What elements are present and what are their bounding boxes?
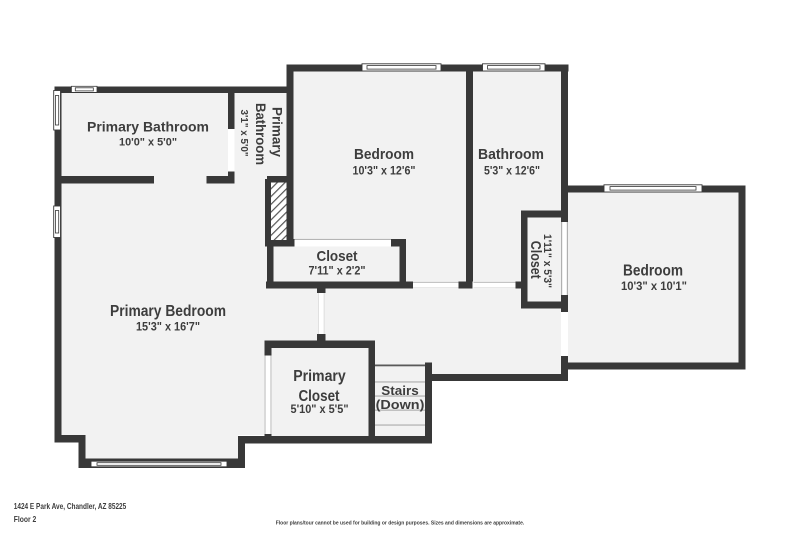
- svg-text:(Down): (Down): [376, 398, 425, 412]
- svg-text:1424 E Park Ave, Chandler, AZ: 1424 E Park Ave, Chandler, AZ 85225: [14, 501, 127, 511]
- svg-text:3'1" x 5'0": 3'1" x 5'0": [238, 110, 250, 157]
- svg-text:Primary: Primary: [293, 368, 346, 385]
- svg-text:Closet: Closet: [317, 248, 358, 265]
- svg-text:Bedroom: Bedroom: [623, 263, 683, 280]
- svg-text:Bedroom: Bedroom: [354, 147, 414, 163]
- svg-text:Floor plans/tour cannot be use: Floor plans/tour cannot be used for buil…: [276, 520, 525, 526]
- svg-text:7'11" x 2'2": 7'11" x 2'2": [309, 266, 366, 278]
- svg-text:10'0" x 5'0": 10'0" x 5'0": [119, 137, 177, 149]
- svg-text:Floor 2: Floor 2: [14, 514, 37, 524]
- svg-text:10'3" x 10'1": 10'3" x 10'1": [621, 281, 687, 293]
- svg-text:5'3" x 12'6": 5'3" x 12'6": [484, 166, 540, 178]
- svg-text:Stairs: Stairs: [381, 384, 419, 398]
- svg-text:1'11" x 5'3": 1'11" x 5'3": [541, 234, 553, 288]
- svg-text:Bathroom: Bathroom: [478, 147, 544, 163]
- svg-text:Primary Bedroom: Primary Bedroom: [110, 303, 226, 320]
- svg-text:Closet: Closet: [527, 241, 543, 279]
- svg-text:15'3" x 16'7": 15'3" x 16'7": [136, 322, 200, 334]
- svg-text:10'3" x 12'6": 10'3" x 12'6": [353, 166, 416, 178]
- svg-text:5'10" x 5'5": 5'10" x 5'5": [291, 402, 349, 416]
- svg-text:Bathroom: Bathroom: [253, 103, 268, 165]
- svg-text:Primary Bathroom: Primary Bathroom: [87, 119, 209, 135]
- svg-text:Primary: Primary: [269, 107, 284, 157]
